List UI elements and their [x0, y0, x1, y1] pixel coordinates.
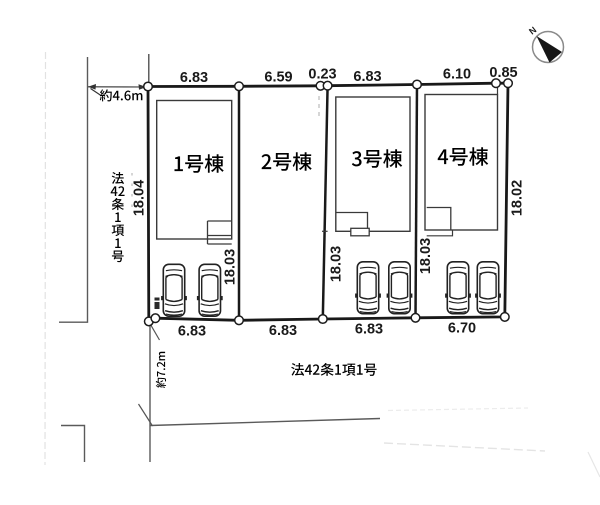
svg-text:6.83: 6.83	[353, 69, 381, 85]
svg-text:18.03: 18.03	[418, 238, 434, 274]
svg-text:6.83: 6.83	[180, 70, 208, 86]
svg-text:0.85: 0.85	[489, 65, 517, 81]
svg-text:18.02: 18.02	[510, 180, 526, 216]
svg-text:N: N	[527, 25, 538, 37]
svg-text:6.70: 6.70	[448, 321, 476, 337]
svg-text:6.83: 6.83	[178, 324, 206, 340]
svg-text:6.10: 6.10	[443, 66, 471, 82]
svg-text:18.03: 18.03	[329, 246, 345, 282]
svg-text:18.04: 18.04	[132, 180, 148, 216]
svg-text:6.83: 6.83	[355, 322, 383, 338]
svg-text:6.59: 6.59	[264, 70, 292, 86]
svg-text:6.83: 6.83	[269, 323, 297, 339]
svg-text:18.03: 18.03	[223, 249, 239, 285]
svg-text:0.23: 0.23	[308, 67, 336, 83]
